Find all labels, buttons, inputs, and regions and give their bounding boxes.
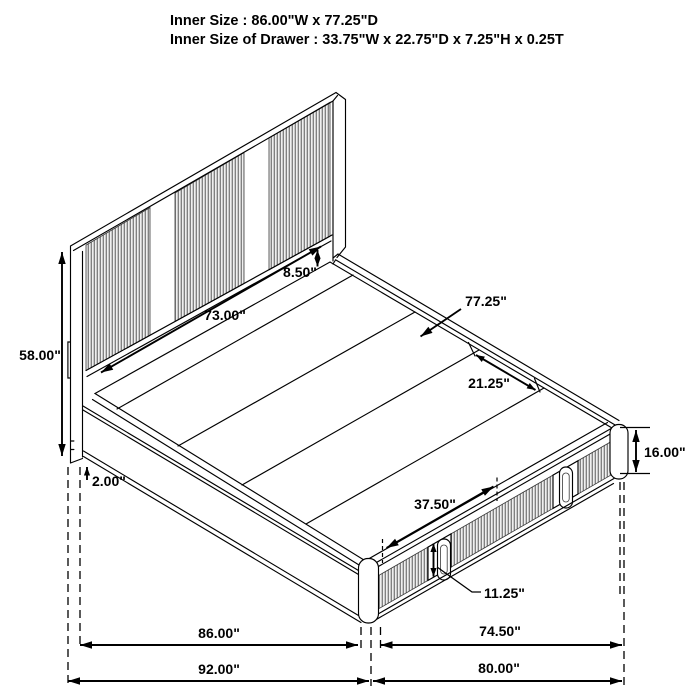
label-headboard-rail-height: 8.50" <box>283 264 317 280</box>
label-headboard-inner-width: 73.00" <box>204 307 246 323</box>
label-floor-clearance: 2.00" <box>92 473 126 489</box>
headboard-slat-panel-right <box>269 102 330 270</box>
label-footboard-height: 16.00" <box>644 444 686 460</box>
label-drawer-front-height: 11.25" <box>484 585 525 601</box>
label-inner-width: 86.00" <box>198 625 240 641</box>
bed-dimension-diagram: Inner Size : 86.00"W x 77.25"D Inner Siz… <box>0 0 700 700</box>
label-drawer-pair-width: 37.50" <box>414 496 456 512</box>
right-corner-post <box>610 425 628 480</box>
drawer-size-title: Inner Size of Drawer : 33.75"W x 22.75"D… <box>170 32 564 48</box>
label-overall-width: 92.00" <box>198 661 240 677</box>
platform-deck <box>83 254 619 623</box>
label-rail-corner-offset: 21.25" <box>468 375 510 391</box>
inner-size-title: Inner Size : 86.00"W x 77.25"D <box>170 13 378 29</box>
label-headboard-height: 58.00" <box>19 347 61 363</box>
header-text: Inner Size : 86.00"W x 77.25"D Inner Siz… <box>170 13 564 48</box>
label-platform-inner-depth: 77.25" <box>465 293 507 309</box>
diagram-svg: Inner Size : 86.00"W x 77.25"D Inner Siz… <box>0 0 700 700</box>
label-overall-depth: 80.00" <box>478 660 520 676</box>
front-corner-post <box>359 559 379 624</box>
label-side-span: 74.50" <box>479 623 521 639</box>
